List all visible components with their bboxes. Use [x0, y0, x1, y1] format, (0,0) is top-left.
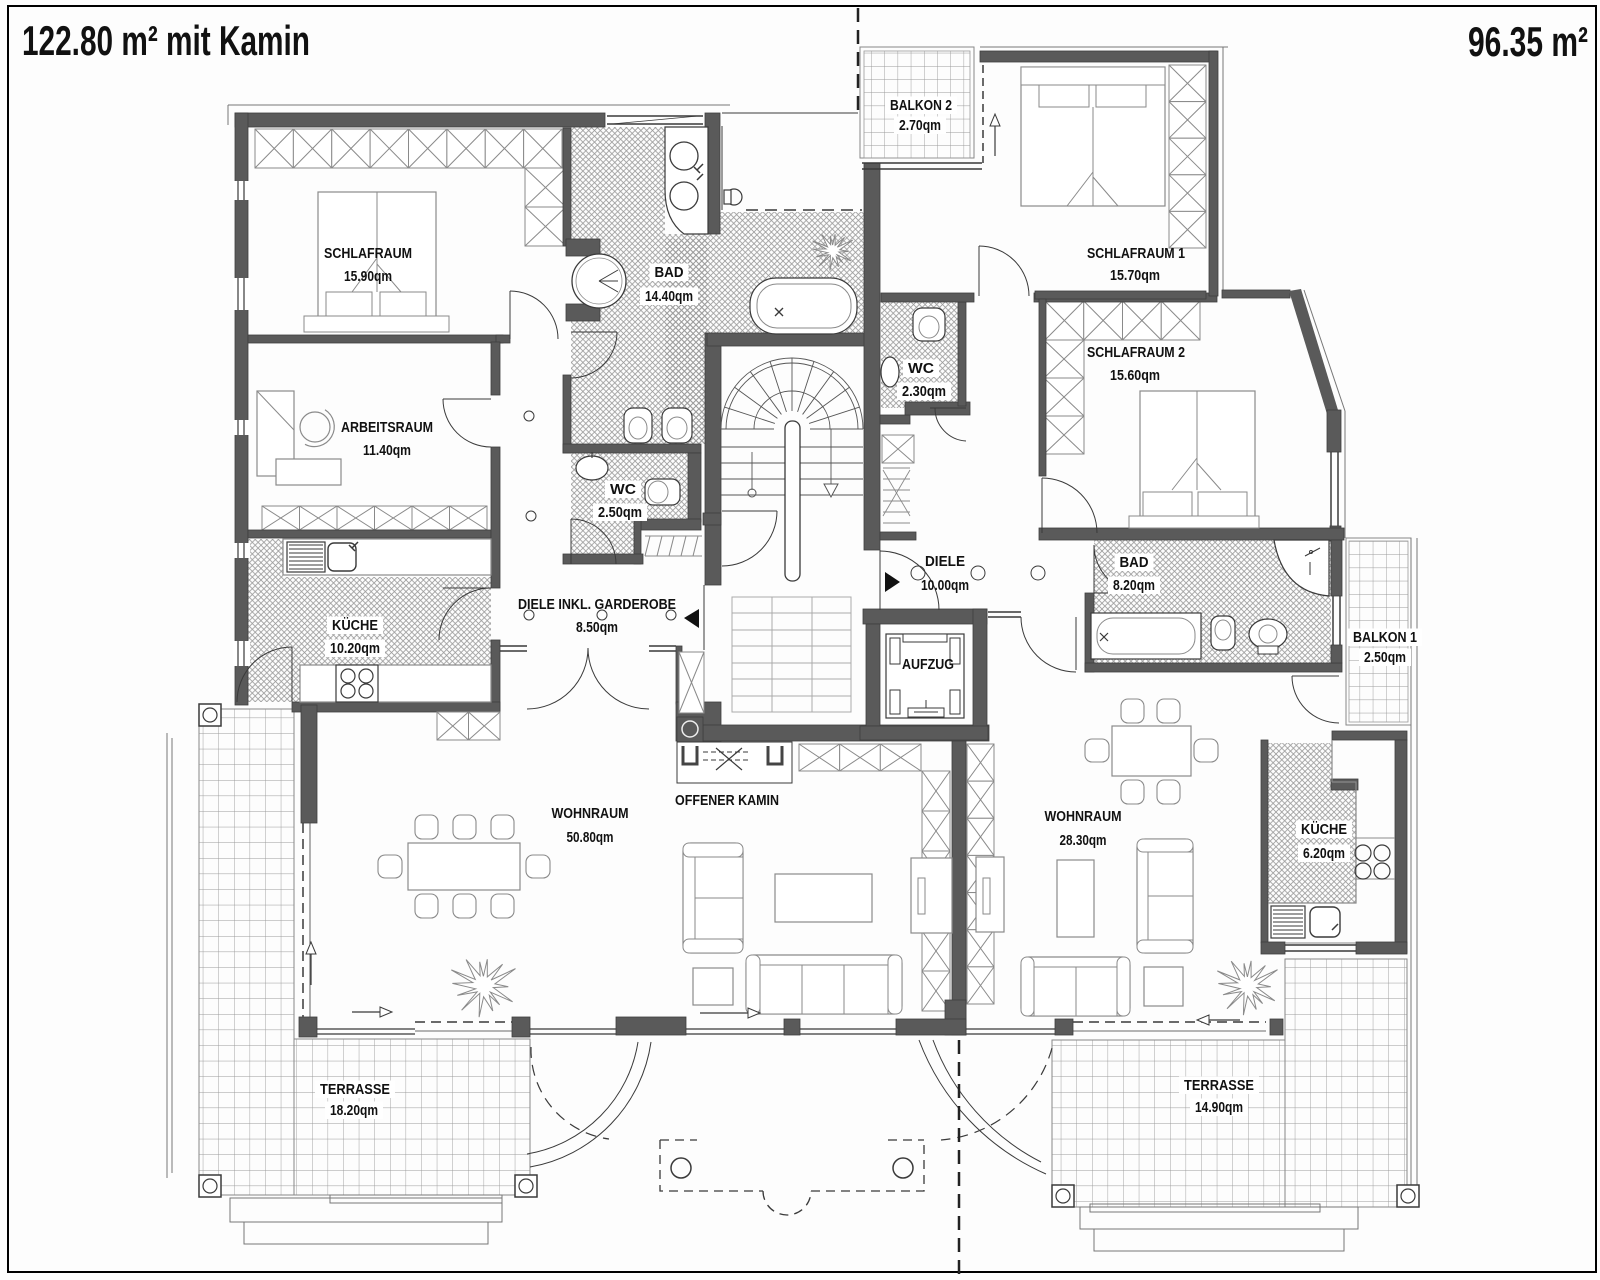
svg-text:122.80 m² mit Kamin: 122.80 m² mit Kamin: [22, 17, 310, 64]
svg-text:14.90qm: 14.90qm: [1195, 1100, 1243, 1116]
svg-text:2.50qm: 2.50qm: [1364, 650, 1406, 666]
svg-text:11.40qm: 11.40qm: [363, 443, 411, 459]
svg-text:DIELE INKL. GARDEROBE: DIELE INKL. GARDEROBE: [518, 597, 676, 613]
svg-text:DIELE: DIELE: [925, 554, 965, 570]
svg-text:96.35 m²: 96.35 m²: [1468, 18, 1588, 65]
svg-text:8.50qm: 8.50qm: [576, 620, 618, 636]
svg-text:TERRASSE: TERRASSE: [320, 1082, 390, 1098]
svg-text:ARBEITSRAUM: ARBEITSRAUM: [341, 420, 433, 436]
svg-text:BAD: BAD: [655, 265, 684, 281]
svg-text:14.40qm: 14.40qm: [645, 289, 693, 305]
svg-text:8.20qm: 8.20qm: [1113, 578, 1155, 594]
svg-text:2.50qm: 2.50qm: [598, 505, 642, 521]
svg-text:WC: WC: [610, 482, 637, 498]
svg-text:BAD: BAD: [1120, 555, 1149, 571]
svg-text:15.60qm: 15.60qm: [1110, 368, 1160, 384]
svg-text:28.30qm: 28.30qm: [1060, 833, 1107, 849]
svg-text:WOHNRAUM: WOHNRAUM: [1045, 809, 1122, 825]
svg-text:SCHLAFRAUM: SCHLAFRAUM: [324, 246, 412, 262]
svg-text:AUFZUG: AUFZUG: [902, 657, 954, 673]
svg-text:BALKON 1: BALKON 1: [1353, 630, 1417, 646]
svg-text:TERRASSE: TERRASSE: [1184, 1078, 1254, 1094]
svg-text:OFFENER KAMIN: OFFENER KAMIN: [675, 793, 779, 809]
svg-text:SCHLAFRAUM 2: SCHLAFRAUM 2: [1087, 345, 1185, 361]
svg-text:2.70qm: 2.70qm: [899, 118, 941, 134]
svg-text:KÜCHE: KÜCHE: [1301, 821, 1347, 838]
svg-text:6.20qm: 6.20qm: [1303, 846, 1345, 862]
svg-text:SCHLAFRAUM 1: SCHLAFRAUM 1: [1087, 246, 1185, 262]
svg-text:KÜCHE: KÜCHE: [332, 617, 378, 634]
svg-text:50.80qm: 50.80qm: [567, 830, 614, 846]
svg-text:10.20qm: 10.20qm: [330, 641, 380, 657]
svg-text:18.20qm: 18.20qm: [330, 1103, 378, 1119]
svg-text:10.00qm: 10.00qm: [921, 578, 969, 594]
svg-text:2.30qm: 2.30qm: [902, 384, 946, 400]
svg-text:WOHNRAUM: WOHNRAUM: [552, 806, 629, 822]
svg-text:WC: WC: [908, 361, 935, 377]
svg-text:15.90qm: 15.90qm: [344, 269, 392, 285]
svg-text:15.70qm: 15.70qm: [1110, 268, 1160, 284]
svg-text:BALKON 2: BALKON 2: [890, 98, 952, 114]
